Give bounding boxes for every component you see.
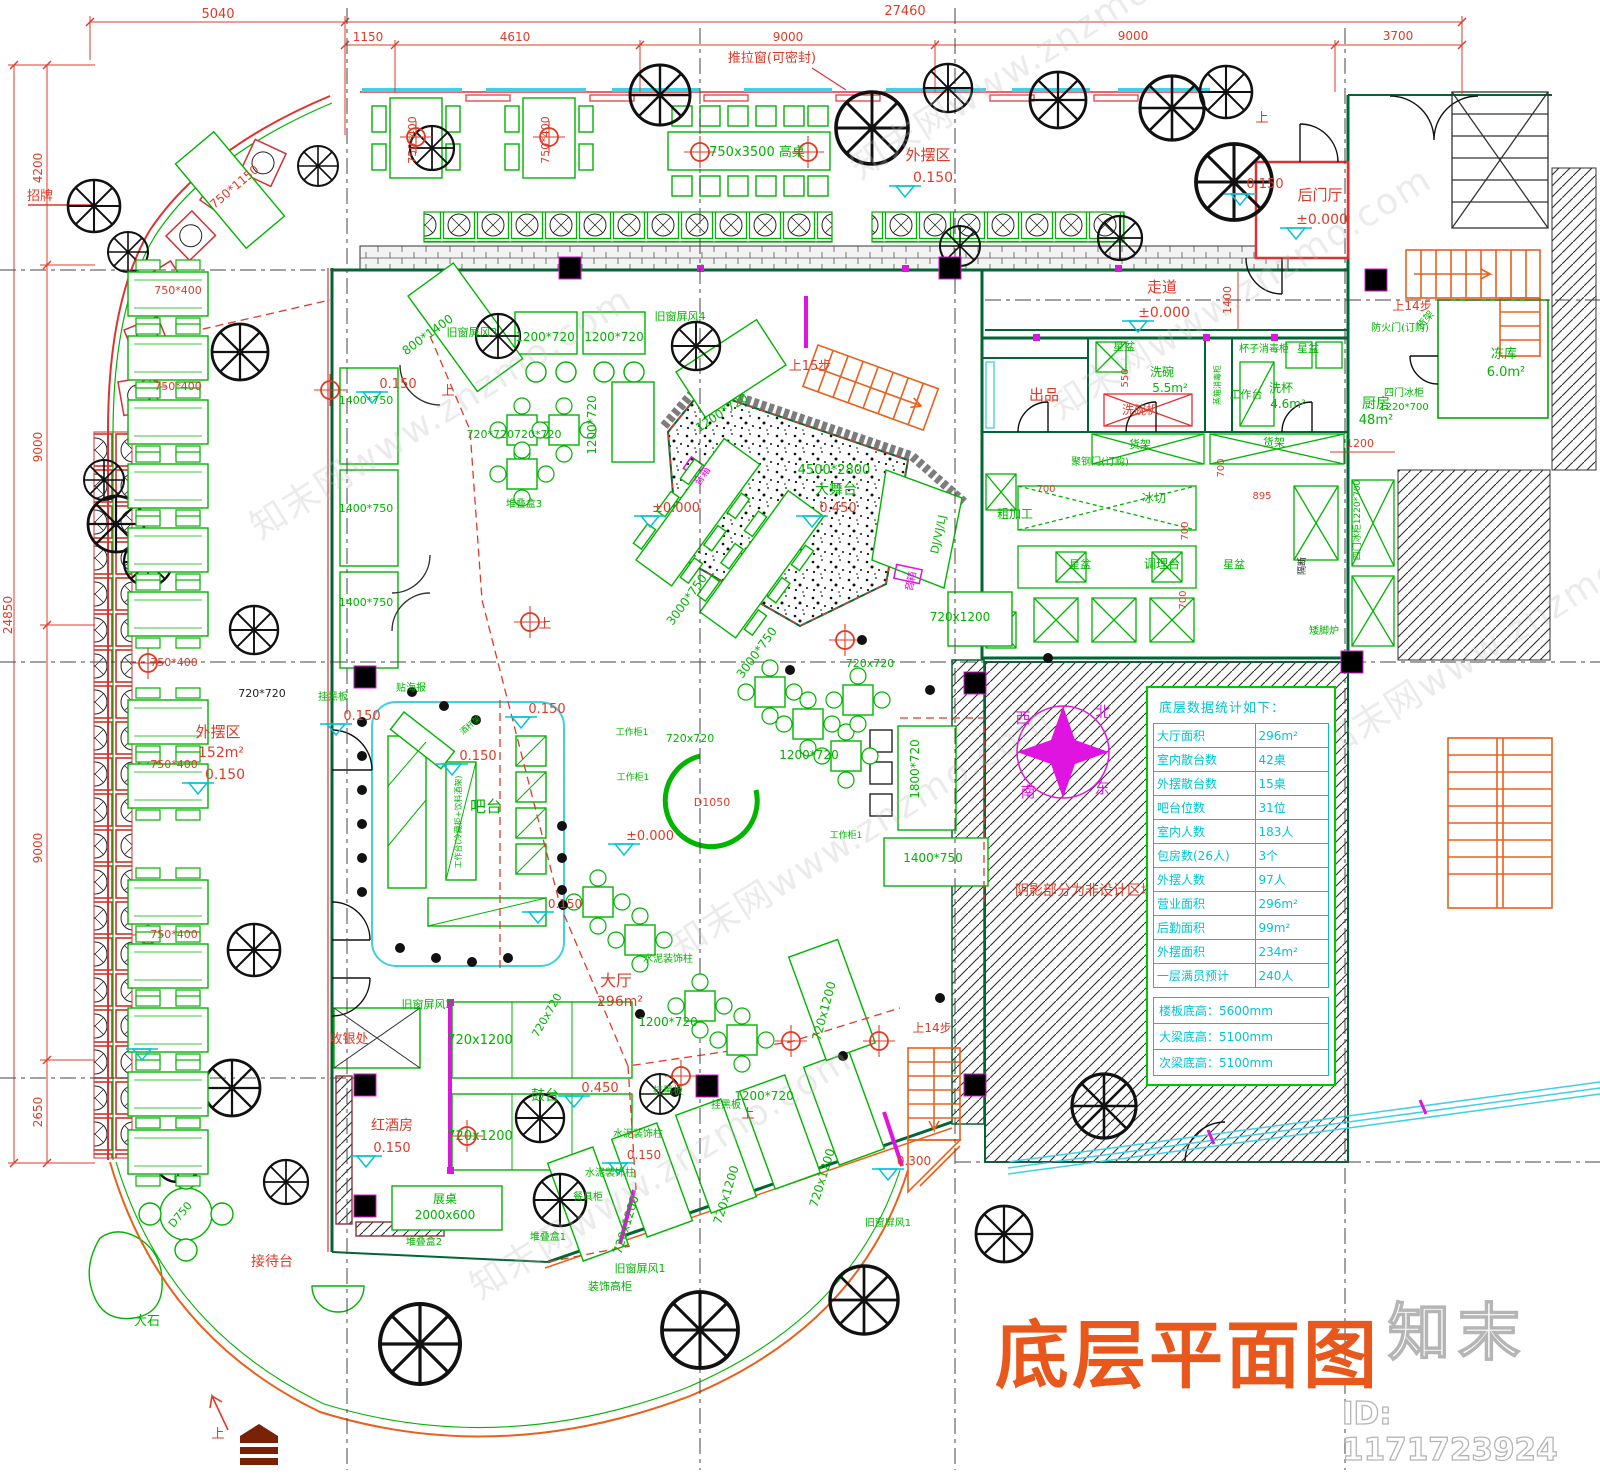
plan-label: 上 bbox=[211, 1427, 224, 1442]
elevation-marker-icon bbox=[608, 844, 640, 855]
stool-dot bbox=[357, 785, 367, 795]
plan-label: 720x1200 bbox=[930, 610, 991, 624]
stool-dot bbox=[857, 635, 867, 645]
plan-label: 上 bbox=[1255, 111, 1268, 126]
plan-label: 洗碗机 bbox=[1122, 402, 1158, 417]
plan-label: 大石 bbox=[134, 1314, 160, 1329]
plan-label: 星盆 bbox=[1223, 557, 1245, 571]
stats-label: 后勤面积 bbox=[1154, 916, 1256, 940]
plan-label: 外摆区 bbox=[905, 146, 950, 164]
square-table-icon bbox=[710, 1008, 774, 1072]
tree-icon bbox=[204, 1060, 260, 1116]
plan-label: 上14步 bbox=[912, 1021, 951, 1035]
stats-height-row: 楼板底高：5600mm bbox=[1154, 998, 1328, 1024]
plan-label: 0.450 bbox=[819, 501, 856, 516]
plan-label: 星盆 bbox=[1069, 557, 1091, 571]
elevation-marker-icon bbox=[505, 717, 537, 728]
stool-dot bbox=[1043, 653, 1053, 663]
stool-dot bbox=[557, 885, 567, 895]
stats-height-row: 次梁底高：5100mm bbox=[1154, 1050, 1328, 1075]
plan-label: 旧窗屏风3 bbox=[447, 325, 498, 339]
plan-label: 水泥装饰柱 bbox=[643, 952, 693, 965]
column-icon bbox=[354, 1195, 376, 1217]
plan-label: 上 bbox=[441, 384, 454, 399]
plan-label: 1200 bbox=[1346, 437, 1374, 450]
plan-label: 旧窗屏风4 bbox=[655, 309, 706, 323]
plan-label: 吧台 bbox=[470, 797, 502, 816]
stats-rows: 大厅面积296m²室内散台数42桌外摆散台数15桌吧台位数31位室内人数183人… bbox=[1153, 723, 1329, 988]
plan-label: 1400 bbox=[1221, 286, 1234, 314]
plan-label: 防火门(订购) bbox=[1371, 321, 1429, 334]
stats-value: 31位 bbox=[1255, 796, 1329, 820]
plan-label: 895 bbox=[1252, 491, 1271, 502]
stats-row: 外摆面积234m² bbox=[1154, 940, 1329, 964]
stats-height-row: 大梁底高：5100mm bbox=[1154, 1024, 1328, 1050]
plan-label: 旧窗屏风1 bbox=[865, 1216, 911, 1229]
stats-row: 外摆人数97人 bbox=[1154, 868, 1329, 892]
plan-label: 上 bbox=[538, 617, 551, 632]
stats-label: 包房数(26人) bbox=[1154, 844, 1256, 868]
watermark-brand: 知末 bbox=[1388, 1282, 1528, 1372]
plan-label: 堆叠盒2 bbox=[406, 1235, 442, 1248]
plan-label: 0.150 bbox=[205, 767, 245, 783]
plan-label: 1400*750 bbox=[903, 851, 962, 865]
stool-dot bbox=[357, 819, 367, 829]
stats-value: 240人 bbox=[1255, 964, 1329, 988]
column-icon bbox=[354, 1074, 376, 1096]
stats-row: 吧台位数31位 bbox=[1154, 796, 1329, 820]
plan-label: 9000 bbox=[773, 30, 804, 44]
tree-icon bbox=[1140, 76, 1204, 140]
plan-label: 720*720 bbox=[238, 687, 286, 700]
plan-label: 152m² bbox=[198, 745, 244, 761]
heater-target-icon bbox=[829, 624, 861, 656]
stool-dot bbox=[357, 853, 367, 863]
stats-label: 外摆人数 bbox=[1154, 868, 1256, 892]
square-table-icon bbox=[490, 442, 554, 506]
tree-icon bbox=[662, 1292, 738, 1368]
plan-label: 1400*750 bbox=[339, 394, 394, 407]
plan-label: 四门冰柜 bbox=[1384, 386, 1424, 399]
stats-value: 15桌 bbox=[1255, 772, 1329, 796]
plan-label: 2000x600 bbox=[415, 1208, 476, 1222]
plan-label: 1800*720 bbox=[908, 739, 922, 798]
stats-title: 底层数据统计如下： bbox=[1159, 697, 1329, 716]
outdoor-table-icon bbox=[128, 688, 208, 756]
plan-label: 550 bbox=[1120, 368, 1131, 387]
plan-label: 700 bbox=[1216, 458, 1227, 477]
plan-label: 0.150 bbox=[913, 170, 953, 186]
plan-label: 旧窗屏风1 bbox=[615, 1261, 666, 1275]
column-icon bbox=[1365, 269, 1387, 291]
plan-label: 东 bbox=[1094, 779, 1109, 797]
plan-label: 9000 bbox=[31, 833, 45, 864]
plan-label: 750*400 bbox=[150, 656, 198, 669]
stats-value: 234m² bbox=[1255, 940, 1329, 964]
plan-label: 洗杯 bbox=[1269, 381, 1293, 395]
plan-label: 1400*750 bbox=[339, 502, 394, 515]
floor-plan-canvas: 知末网www.znzmo.com知末网www.znzmo.com知末网www.z… bbox=[0, 0, 1600, 1476]
plan-label: 9000 bbox=[1118, 29, 1149, 43]
stats-label: 吧台位数 bbox=[1154, 796, 1256, 820]
stats-label: 营业面积 bbox=[1154, 892, 1256, 916]
plan-label: 750*400 bbox=[154, 284, 202, 297]
plan-label: 750*400 bbox=[150, 928, 198, 941]
plan-title: 底层平面图 bbox=[995, 1296, 1375, 1403]
plan-label: 1150 bbox=[353, 30, 384, 44]
plan-label: 4500*2800 bbox=[798, 463, 871, 478]
stats-row: 室内散台数42桌 bbox=[1154, 748, 1329, 772]
tree-icon bbox=[1098, 216, 1142, 260]
plan-label: 4.6m² bbox=[1270, 397, 1306, 411]
plan-label: 推拉窗(可密封) bbox=[728, 50, 816, 66]
tree-icon bbox=[298, 146, 338, 186]
plan-label: 750*400 bbox=[150, 758, 198, 771]
outdoor-table-icon bbox=[128, 388, 208, 456]
bar-area bbox=[372, 700, 564, 970]
plan-label: 0.150 bbox=[1246, 177, 1283, 192]
plan-label: ±0.000 bbox=[1296, 212, 1348, 228]
stool-dot bbox=[557, 853, 567, 863]
outdoor-table-icon bbox=[128, 580, 208, 648]
watermark-tile: 知末网www.znzmo.com bbox=[843, 0, 1239, 188]
column-icon bbox=[559, 257, 581, 279]
plan-label: 音箱 bbox=[902, 570, 919, 592]
stats-label: 室内人数 bbox=[1154, 820, 1256, 844]
plan-label: 鼓台 bbox=[531, 1088, 559, 1104]
plan-label: 700 bbox=[1178, 590, 1189, 609]
plan-label: 餐具柜 bbox=[573, 1190, 603, 1203]
plan-label: 货架 bbox=[1129, 437, 1151, 451]
tree-icon bbox=[672, 322, 720, 370]
plan-label: 接待台 bbox=[251, 1253, 293, 1270]
stool-dot bbox=[431, 953, 441, 963]
plan-label: 冻库 bbox=[1491, 346, 1517, 362]
heater-target-icon bbox=[775, 1025, 807, 1057]
stats-value: 3个 bbox=[1255, 844, 1329, 868]
tree-icon bbox=[380, 1304, 460, 1384]
plan-label: 700 bbox=[1180, 521, 1191, 540]
outdoor-table-icon bbox=[128, 932, 208, 1000]
column-icon bbox=[696, 1075, 718, 1097]
plan-label: 挂黑板 bbox=[711, 1098, 741, 1111]
stats-row: 室内人数183人 bbox=[1154, 820, 1329, 844]
plan-label: 720x720 bbox=[666, 732, 715, 745]
plan-label: 工作柜1 bbox=[830, 829, 863, 841]
stats-heights: 楼板底高：5600mm大梁底高：5100mm次梁底高：5100mm bbox=[1153, 997, 1329, 1076]
outdoor-table-icon bbox=[128, 1118, 208, 1186]
plan-label: 展桌 bbox=[433, 1192, 457, 1206]
plan-label: 24850 bbox=[1, 596, 15, 634]
tree-icon bbox=[84, 460, 124, 500]
tree-icon bbox=[264, 1160, 308, 1204]
plan-label: 招牌 bbox=[27, 188, 53, 204]
tree-icon bbox=[1030, 72, 1086, 128]
plan-label: 720x720 bbox=[846, 657, 895, 670]
plan-label: 挂黑板 bbox=[653, 1084, 683, 1097]
plan-label: 矮脚炉 bbox=[1309, 624, 1339, 637]
stool-dot bbox=[357, 751, 367, 761]
plan-label: 720x1200 bbox=[447, 1033, 513, 1048]
plan-label: 1200*720 bbox=[584, 330, 643, 344]
watermark-id: ID: 1171723924 bbox=[1342, 1396, 1600, 1468]
plan-label: 聚钢门(订购) bbox=[1071, 455, 1129, 468]
plan-label: 南 bbox=[1020, 783, 1035, 801]
plan-label: 贴海报 bbox=[396, 681, 426, 694]
tree-icon bbox=[212, 324, 268, 380]
plan-label: 0.150 bbox=[548, 897, 582, 911]
plan-label: 0.150 bbox=[528, 702, 565, 717]
stats-value: 99m² bbox=[1255, 916, 1329, 940]
outdoor-table-icon bbox=[128, 452, 208, 520]
plan-label: 9000 bbox=[31, 432, 45, 463]
plan-label: 1400*750 bbox=[339, 596, 394, 609]
stats-label: 外摆面积 bbox=[1154, 940, 1256, 964]
stats-label: 大厅面积 bbox=[1154, 724, 1256, 748]
stats-value: 183人 bbox=[1255, 820, 1329, 844]
plan-label: 0.150 bbox=[627, 1148, 661, 1162]
outdoor-table-icon bbox=[128, 996, 208, 1064]
stats-row: 外摆散台数15桌 bbox=[1154, 772, 1329, 796]
plan-label: 4610 bbox=[500, 30, 531, 44]
plan-label: 星盆 bbox=[1297, 341, 1319, 355]
plan-label: 隔断 bbox=[1296, 557, 1308, 575]
plan-label: 6.0m² bbox=[1487, 365, 1526, 380]
stool-dot bbox=[395, 943, 405, 953]
plan-label: 上 bbox=[741, 1107, 754, 1122]
tree-icon bbox=[630, 65, 690, 125]
plan-label: 装饰高柜 bbox=[588, 1279, 632, 1293]
plan-label: 720*720720*720 bbox=[467, 428, 562, 441]
plan-label: 1200*720 bbox=[585, 395, 599, 454]
plan-label: 296m² bbox=[597, 994, 643, 1010]
stats-value: 296m² bbox=[1255, 724, 1329, 748]
plan-label: 红酒房 bbox=[371, 1118, 413, 1134]
top-terrace bbox=[360, 68, 1250, 196]
plan-label: 冰切 bbox=[1142, 491, 1166, 505]
plan-label: 750*400 bbox=[406, 116, 419, 164]
column-icon bbox=[964, 672, 986, 694]
plan-label: 外摆区 bbox=[195, 723, 240, 741]
plan-label: 粗加工 bbox=[997, 507, 1033, 521]
plan-label: 堆叠盒3 bbox=[506, 497, 542, 510]
plan-label: 旧窗屏风2 bbox=[402, 997, 453, 1011]
stats-table: 底层数据统计如下： 大厅面积296m²室内散台数42桌外摆散台数15桌吧台位数3… bbox=[1146, 686, 1336, 1086]
floor-plan-page: 知末网www.znzmo.com知末网www.znzmo.com知末网www.z… bbox=[0, 0, 1600, 1476]
stats-row: 一层满员预计240人 bbox=[1154, 964, 1329, 988]
plan-label: 出品 bbox=[1029, 386, 1059, 404]
elevation-marker-icon bbox=[872, 1169, 904, 1180]
tree-icon bbox=[976, 1206, 1032, 1262]
column-icon bbox=[939, 257, 961, 279]
tree-icon bbox=[1200, 66, 1252, 118]
plan-label: 工作台(冷藏柜+饮料酒架) bbox=[453, 776, 463, 869]
tree-icon bbox=[228, 924, 280, 976]
tree-icon bbox=[230, 606, 278, 654]
plan-label: 北 bbox=[1095, 703, 1110, 721]
stool-dot bbox=[357, 887, 367, 897]
elevation-marker-icon bbox=[889, 186, 921, 197]
plan-label: 4200 bbox=[31, 153, 45, 184]
stool-dot bbox=[785, 665, 795, 675]
plan-label: 0.150 bbox=[373, 1141, 410, 1156]
plan-label: 5040 bbox=[201, 7, 234, 22]
stats-label: 室内散台数 bbox=[1154, 748, 1256, 772]
watermark-layer: 知末网www.znzmo.com知末网www.znzmo.com知末网www.z… bbox=[243, 0, 1600, 1308]
plan-label: 挂黑板 bbox=[318, 690, 348, 703]
plan-label: 27460 bbox=[884, 4, 925, 19]
plan-label: ±0.000 bbox=[652, 501, 700, 516]
plan-label: 48m² bbox=[1359, 413, 1393, 428]
stats-value: 97人 bbox=[1255, 868, 1329, 892]
plan-label: 大厅 bbox=[600, 971, 632, 990]
plan-label: 0.450 bbox=[581, 1081, 618, 1096]
tree-icon bbox=[1072, 1074, 1136, 1138]
plan-label: 杯子消毒柜 bbox=[1239, 342, 1289, 355]
plan-label: 0.300 bbox=[897, 1154, 931, 1168]
plan-label: 工作柜1 bbox=[617, 771, 650, 783]
plan-label: 750*400 bbox=[539, 116, 552, 164]
plan-label: 西 bbox=[1015, 709, 1030, 727]
plan-label: 3700 bbox=[1383, 29, 1414, 43]
plan-label: 0.150 bbox=[343, 709, 380, 724]
plan-label: 1200*720 bbox=[734, 1089, 793, 1103]
plan-label: ±0.000 bbox=[626, 829, 674, 844]
plan-label: 720x1200 bbox=[447, 1129, 513, 1144]
stats-value: 296m² bbox=[1255, 892, 1329, 916]
plan-label: ±0.000 bbox=[1138, 305, 1190, 321]
plan-label: 2650 bbox=[31, 1097, 45, 1128]
plan-label: 水泥装饰柱 bbox=[585, 1166, 635, 1179]
plan-label: 1200*720 bbox=[779, 748, 838, 762]
plan-label: 走道 bbox=[1147, 278, 1177, 296]
plan-label: 收银处 bbox=[329, 1032, 368, 1047]
plan-label: 750x3500 高桌 bbox=[709, 144, 805, 160]
stool-dot bbox=[467, 957, 477, 967]
plan-label: 蒸箱消毒柜 bbox=[1212, 365, 1222, 405]
plan-label: 上15步 bbox=[789, 359, 832, 374]
plan-label: 洗碗 bbox=[1150, 364, 1174, 379]
plan-label: 0.150 bbox=[459, 749, 496, 764]
plan-label: 堆叠盒1 bbox=[530, 1230, 566, 1243]
elevation-marker-icon bbox=[350, 1156, 382, 1167]
stats-row: 营业面积296m² bbox=[1154, 892, 1329, 916]
plan-label: 阴影部分为非设计区域 bbox=[1015, 883, 1155, 899]
column-icon bbox=[1341, 651, 1363, 673]
plan-label: 酒杯架 bbox=[458, 713, 483, 736]
stool-dot bbox=[557, 821, 567, 831]
plan-label: 大舞台 bbox=[815, 482, 857, 498]
stool-dot bbox=[925, 685, 935, 695]
plan-label: 货架 bbox=[1263, 435, 1285, 449]
plan-label: 1220*700 bbox=[1379, 402, 1429, 413]
plan-label: 水泥装饰柱 bbox=[613, 1127, 663, 1140]
plan-label: 5.5m² bbox=[1152, 381, 1188, 395]
stool-dot bbox=[935, 993, 945, 1003]
plan-label: 1200*720 bbox=[638, 1015, 697, 1029]
column-icon bbox=[964, 1074, 986, 1096]
plan-label: 750*400 bbox=[154, 380, 202, 393]
plan-label: 调理台 bbox=[1144, 556, 1180, 571]
plan-label: 星盆 bbox=[1113, 339, 1135, 353]
tree-icon bbox=[68, 180, 120, 232]
plan-label: 四门冰柜1220*700 bbox=[1351, 479, 1363, 560]
stool-dot bbox=[439, 701, 449, 711]
stats-row: 后勤面积99m² bbox=[1154, 916, 1329, 940]
plan-label: 0.150 bbox=[379, 377, 416, 392]
plan-label: 700 bbox=[1036, 484, 1055, 495]
stats-label: 一层满员预计 bbox=[1154, 964, 1256, 988]
plan-label: 工作台 bbox=[1230, 387, 1263, 401]
plan-label: D1050 bbox=[694, 796, 730, 809]
stool-dot bbox=[503, 953, 513, 963]
stats-row: 包房数(26人)3个 bbox=[1154, 844, 1329, 868]
stats-row: 大厅面积296m² bbox=[1154, 724, 1329, 748]
plan-label: 后门厅 bbox=[1297, 186, 1342, 204]
column-icon bbox=[354, 666, 376, 688]
stats-label: 外摆散台数 bbox=[1154, 772, 1256, 796]
plan-label: 1200*720 bbox=[515, 330, 574, 344]
plan-label: 工作柜1 bbox=[616, 726, 649, 738]
tree-icon bbox=[830, 1266, 898, 1334]
outdoor-table-icon bbox=[128, 868, 208, 936]
stats-value: 42桌 bbox=[1255, 748, 1329, 772]
